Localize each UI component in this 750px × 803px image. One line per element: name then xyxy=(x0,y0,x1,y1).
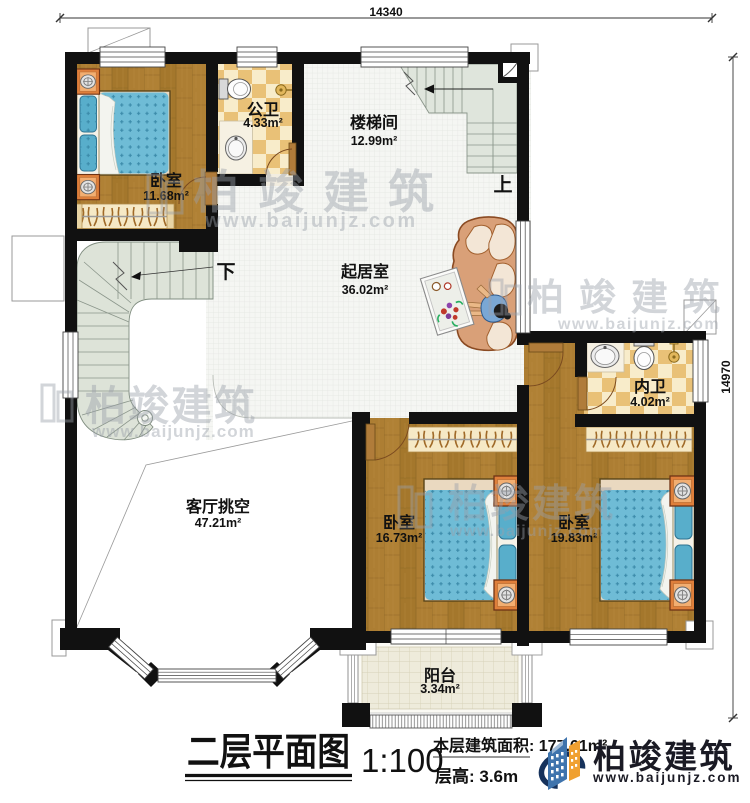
svg-text:楼梯间: 楼梯间 xyxy=(350,113,398,132)
svg-text:内卫: 内卫 xyxy=(634,377,666,396)
svg-text:www.baijunjz.com: www.baijunjz.com xyxy=(91,422,255,441)
svg-text:柏竣建筑: 柏竣建筑 xyxy=(448,483,616,526)
svg-text:16.73m²: 16.73m² xyxy=(376,531,423,545)
svg-text:14340: 14340 xyxy=(369,5,403,19)
svg-text:3.34m²: 3.34m² xyxy=(420,682,460,696)
svg-text:12.99m²: 12.99m² xyxy=(351,134,398,148)
svg-text:36.02m²: 36.02m² xyxy=(342,283,389,297)
svg-text:4.33m²: 4.33m² xyxy=(243,116,283,130)
svg-text:www.baijunjz.com: www.baijunjz.com xyxy=(449,523,604,540)
svg-text:起居室: 起居室 xyxy=(340,262,389,281)
svg-text:14970: 14970 xyxy=(719,360,733,394)
svg-text:下: 下 xyxy=(216,262,235,283)
svg-text:1:100: 1:100 xyxy=(361,742,444,779)
svg-text:www.baijunjz.com: www.baijunjz.com xyxy=(592,770,742,785)
svg-text:上: 上 xyxy=(493,174,512,196)
svg-text:二层平面图: 二层平面图 xyxy=(187,732,350,774)
svg-text:客厅挑空: 客厅挑空 xyxy=(186,497,250,516)
svg-text:层高: 3.6m: 层高: 3.6m xyxy=(435,766,518,786)
svg-text:柏竣建筑: 柏竣建筑 xyxy=(527,276,735,318)
svg-text:www.baijunjz.com: www.baijunjz.com xyxy=(204,210,418,232)
svg-text:本层建筑面积: 177.61m²: 本层建筑面积: 177.61m² xyxy=(433,736,607,755)
svg-text:47.21m²: 47.21m² xyxy=(195,516,242,530)
svg-text:4.02m²: 4.02m² xyxy=(630,395,670,409)
svg-text:www.baijunjz.com: www.baijunjz.com xyxy=(557,316,720,333)
